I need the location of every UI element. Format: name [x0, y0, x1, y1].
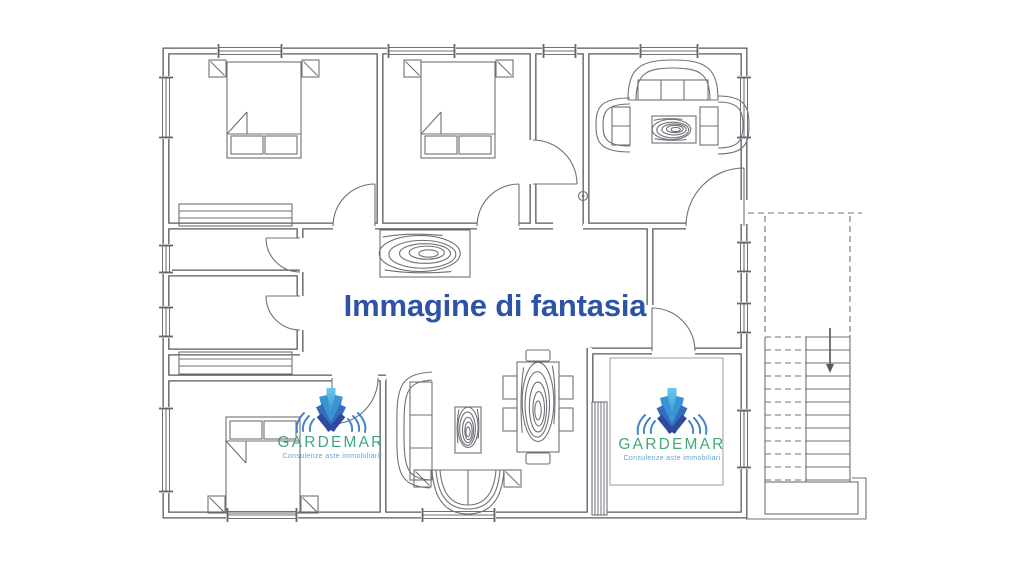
floor-plan: Immagine di fantasia GARDEMAR Consulenze — [0, 0, 1024, 576]
gardemar-logo-2: GARDEMAR Consulenze aste immobiliari — [618, 388, 725, 462]
door-icon — [333, 184, 375, 226]
living-room-furniture — [596, 60, 749, 154]
sideboard-icon — [379, 230, 470, 277]
window-icon — [387, 44, 456, 58]
logo-brand-text: GARDEMAR — [277, 434, 384, 451]
logo-tagline-text: Consulenze aste immobiliari — [283, 453, 380, 460]
dining-chair-icon — [526, 453, 550, 464]
logo-fan-icon — [297, 388, 366, 432]
stair-stringers — [765, 335, 850, 482]
side-table-icon — [504, 470, 521, 487]
dining-chair-icon — [526, 350, 550, 361]
stair-treads-dashed — [765, 337, 806, 480]
bedroom-2-furniture — [404, 60, 513, 158]
radiator-icon — [592, 402, 607, 515]
nightstand-icon — [404, 60, 421, 77]
window-icon — [737, 409, 751, 469]
dining-table-icon — [503, 350, 573, 464]
door-icon — [266, 296, 300, 330]
coffee-table-icon — [652, 116, 696, 143]
door-icon — [652, 308, 695, 351]
window-icon — [226, 508, 298, 522]
logo-tagline-text: Consulenze aste immobiliari — [624, 455, 721, 462]
bedroom-3-furniture — [208, 417, 318, 513]
staircase — [746, 213, 866, 519]
armchair-icon — [596, 98, 630, 152]
door-icon — [266, 238, 300, 272]
door-icon — [533, 140, 577, 184]
window-icon — [737, 302, 751, 334]
window-icon — [737, 241, 751, 273]
dining-area-furniture — [397, 350, 573, 514]
nightstand-icon — [302, 60, 319, 77]
logo-fan-icon — [638, 388, 707, 434]
window-icon — [159, 76, 173, 139]
door-icon — [686, 168, 744, 226]
window-icon — [159, 306, 173, 338]
side-table-icon — [414, 470, 431, 487]
logo-brand-text: GARDEMAR — [618, 436, 725, 453]
doors — [266, 140, 744, 424]
stair-landing — [765, 482, 858, 514]
window-icon — [542, 44, 577, 58]
floor-plan-image: Immagine di fantasia GARDEMAR Consulenze — [0, 0, 1024, 576]
nightstand-icon — [496, 60, 513, 77]
nightstand-icon — [209, 60, 226, 77]
sofa-icon — [628, 60, 718, 100]
window-icon — [217, 44, 283, 58]
dining-chair-icon — [503, 408, 517, 431]
stair-outer-edge — [746, 478, 866, 519]
window-icon — [159, 407, 173, 493]
stairs-opening-dashed-outline — [748, 213, 862, 335]
hall-furniture — [379, 230, 470, 277]
window-icon — [639, 44, 699, 58]
double-bed-icon — [226, 417, 300, 513]
bedroom-1-furniture — [179, 60, 319, 226]
side-table-icon — [455, 407, 481, 453]
dining-chair-icon — [559, 376, 573, 399]
dining-chair-icon — [559, 408, 573, 431]
stair-treads — [806, 337, 850, 480]
double-bed-icon — [421, 62, 495, 158]
nightstand-icon — [301, 496, 318, 513]
door-icon — [477, 184, 519, 226]
window-icon — [159, 244, 173, 274]
dining-chair-icon — [503, 376, 517, 399]
gardemar-logo-1: GARDEMAR Consulenze aste immobiliari — [277, 388, 384, 460]
watermark-text: Immagine di fantasia — [344, 288, 648, 323]
double-bed-icon — [227, 62, 301, 158]
sofa-icon — [432, 470, 504, 514]
nightstand-icon — [208, 496, 225, 513]
